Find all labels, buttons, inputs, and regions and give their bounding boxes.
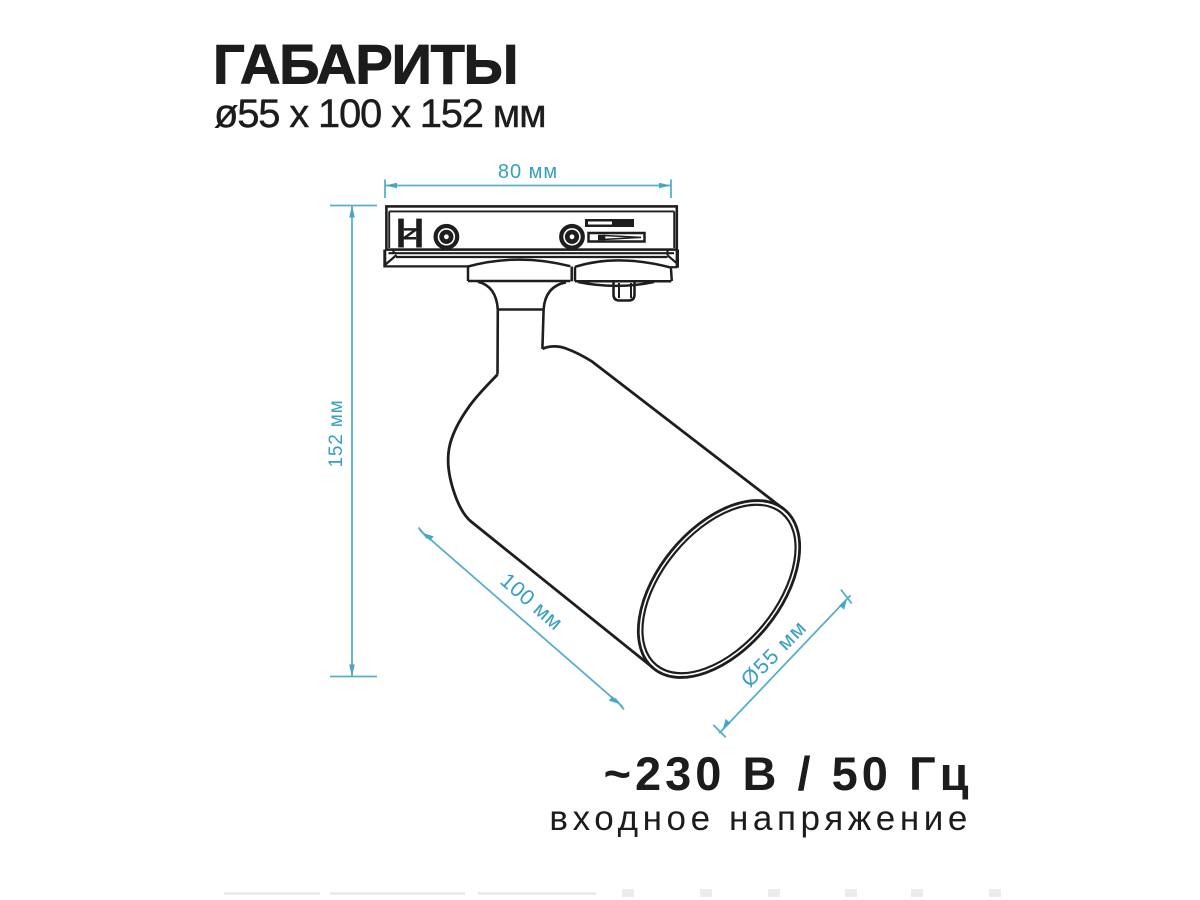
svg-text:~230 В / 50 Гц: ~230 В / 50 Гц [604,747,973,800]
svg-text:ГАБАРИТЫ: ГАБАРИТЫ [213,33,517,96]
svg-text:входное напряжение: входное напряжение [549,799,972,838]
svg-text:152 мм: 152 мм [326,400,347,468]
svg-text:ø55 x 100 x 152 мм: ø55 x 100 x 152 мм [214,92,545,136]
svg-text:80 мм: 80 мм [498,161,558,183]
